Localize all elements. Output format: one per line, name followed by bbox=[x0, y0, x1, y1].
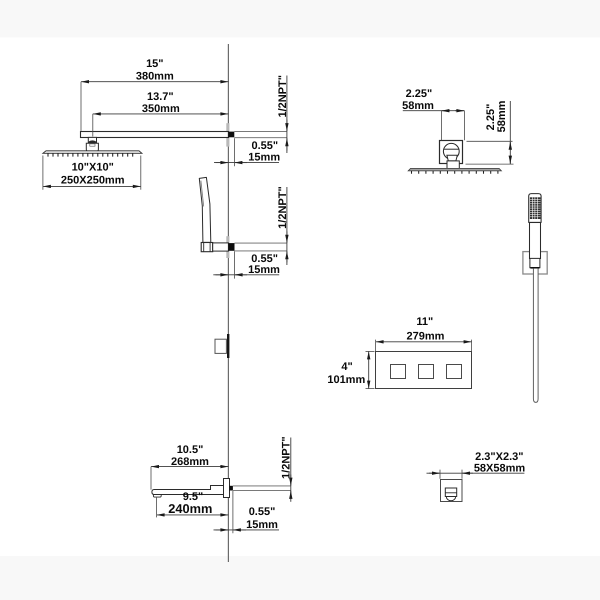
svg-text:2.3"X2.3": 2.3"X2.3" bbox=[475, 451, 523, 463]
svg-text:1/2NPT": 1/2NPT" bbox=[277, 186, 289, 229]
svg-text:15mm: 15mm bbox=[248, 152, 280, 164]
svg-text:10"X10": 10"X10" bbox=[72, 161, 114, 173]
svg-text:1/2NPT": 1/2NPT" bbox=[277, 75, 289, 118]
svg-text:13.7": 13.7" bbox=[147, 91, 174, 103]
svg-text:350mm: 350mm bbox=[142, 103, 180, 115]
svg-text:58X58mm: 58X58mm bbox=[474, 463, 526, 475]
svg-text:2.25": 2.25" bbox=[406, 88, 433, 100]
svg-text:4": 4" bbox=[341, 361, 352, 373]
svg-text:11": 11" bbox=[416, 316, 433, 328]
svg-text:279mm: 279mm bbox=[407, 330, 445, 342]
svg-text:1/2NPT": 1/2NPT" bbox=[281, 436, 293, 479]
svg-text:380mm: 380mm bbox=[136, 71, 174, 83]
svg-text:250X250mm: 250X250mm bbox=[61, 175, 125, 187]
svg-text:15": 15" bbox=[146, 58, 163, 70]
svg-text:240mm: 240mm bbox=[168, 501, 212, 516]
svg-text:15mm: 15mm bbox=[246, 519, 278, 531]
svg-text:10.5": 10.5" bbox=[177, 444, 204, 456]
svg-text:0.55": 0.55" bbox=[249, 506, 276, 518]
svg-text:0.55": 0.55" bbox=[251, 140, 278, 152]
svg-text:101mm: 101mm bbox=[327, 374, 365, 386]
svg-text:58mm: 58mm bbox=[496, 100, 508, 132]
